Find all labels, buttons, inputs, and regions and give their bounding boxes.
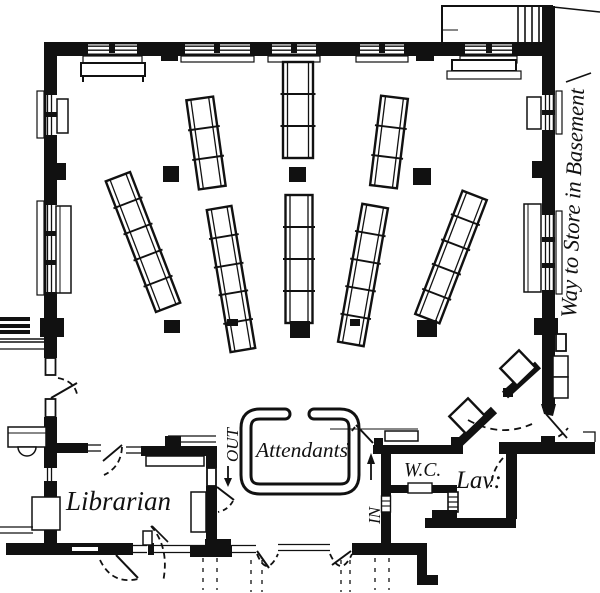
svg-text:Librarian: Librarian xyxy=(65,486,171,516)
svg-text:OUT: OUT xyxy=(223,426,242,462)
svg-text:W.C.: W.C. xyxy=(404,460,441,481)
svg-text:Attendants: Attendants xyxy=(254,438,348,462)
